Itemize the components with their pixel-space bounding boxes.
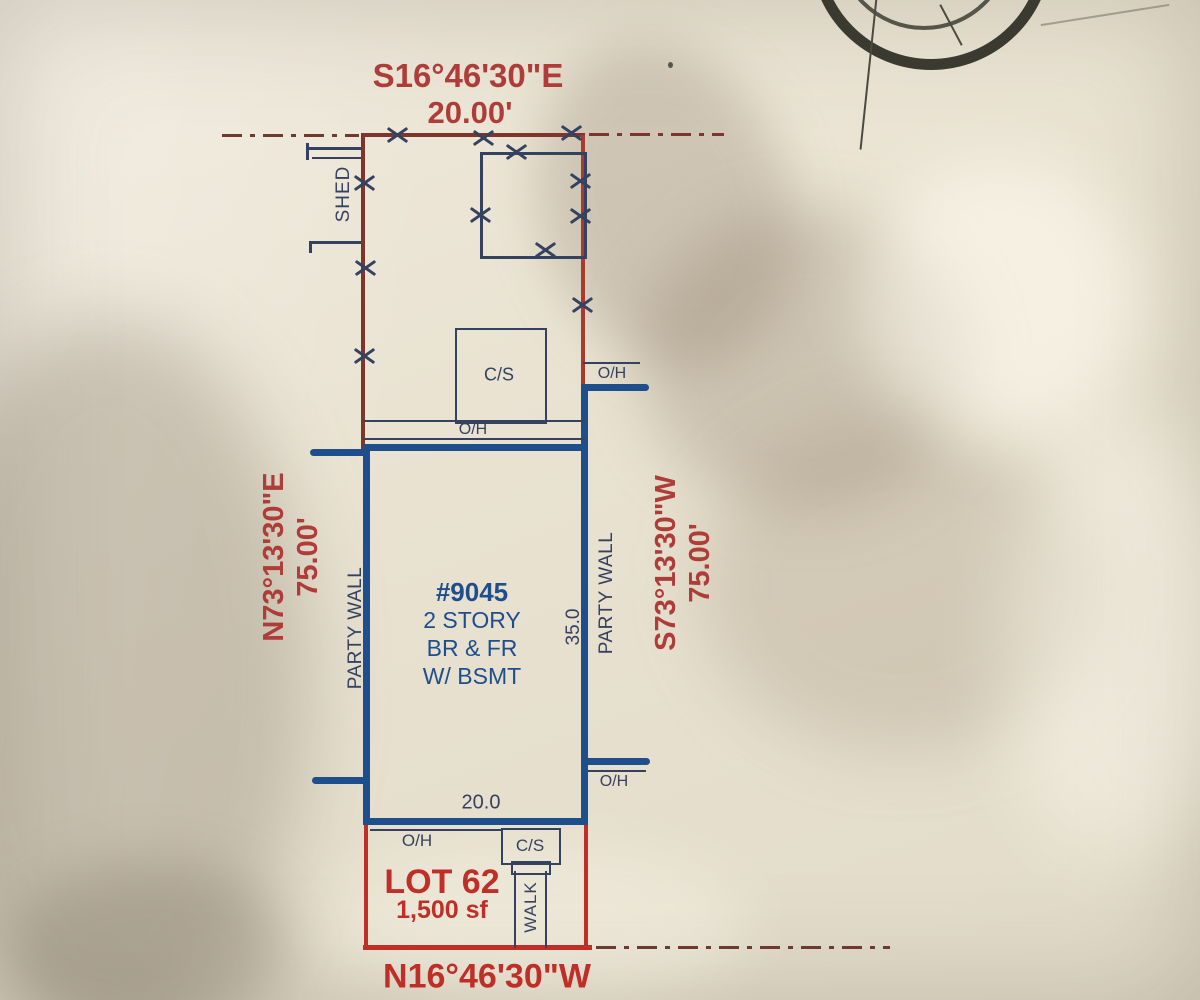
bearing-west: N73°13'30"E <box>257 472 291 641</box>
fence-x-mark <box>469 204 493 226</box>
paper-shadow <box>10 860 290 1000</box>
bearing-west-block: N73°13'30"E 75.00' <box>257 472 325 641</box>
boundary-extension-top-left <box>222 134 359 137</box>
overhang-label-upper-right: O/H <box>598 365 626 383</box>
overhang-line-bottom <box>370 829 502 831</box>
fence-x-mark <box>569 205 593 227</box>
boundary-extension-top-right <box>589 133 724 136</box>
paper-highlight <box>1000 420 1200 860</box>
overhang-label-lower-right: O/H <box>600 773 628 791</box>
lot-area: 1,500 sf <box>384 896 499 924</box>
building-depth-dimension: 35.0 <box>563 609 585 646</box>
fence-x-mark <box>354 257 378 279</box>
paper-highlight <box>860 160 1140 440</box>
lot-boundary-west-lower <box>364 822 368 950</box>
distance-west: 75.00' <box>291 472 325 641</box>
party-wall-elbow-vertical <box>581 384 588 450</box>
ink-speck <box>668 62 673 68</box>
building-description: #9045 2 STORY BR & FR W/ BSMT <box>423 578 521 690</box>
lot-boundary-east-lower <box>584 822 588 950</box>
overhang-leader-line <box>583 362 640 364</box>
house-number: #9045 <box>423 578 521 606</box>
scratch-line <box>1041 4 1170 26</box>
boundary-extension-bottom-right <box>596 946 890 949</box>
overhang-leader-line <box>588 770 646 772</box>
walk-label: WALK <box>521 881 541 933</box>
distance-east: 75.00' <box>683 475 717 651</box>
building-width-dimension: 20.0 <box>462 792 501 815</box>
shed-end-tick <box>309 241 312 253</box>
overhang-label-bottom: O/H <box>402 831 432 851</box>
building-desc-line: W/ BSMT <box>423 662 521 690</box>
paper-shadow <box>0 320 310 1000</box>
house-wall-tick-left-top <box>310 449 365 456</box>
fence-x-mark <box>353 172 377 194</box>
party-wall-elbow-horizontal <box>581 384 649 391</box>
fence-x-mark <box>571 294 595 316</box>
distance-north: 20.00' <box>428 95 513 131</box>
lot-boundary-south <box>363 945 592 950</box>
building-desc-line: BR & FR <box>423 634 521 662</box>
fence-x-mark <box>569 170 593 192</box>
survey-plat-photo: SHED C/S O/H O/H O/H #9045 2 STORY BR & … <box>0 0 1200 1000</box>
house-wall-tick-left-bottom <box>312 777 367 784</box>
paper-shadow <box>700 420 1100 750</box>
fence-x-mark <box>353 345 377 367</box>
bearing-east: S73°13'30"W <box>649 475 683 651</box>
overhang-label-top: O/H <box>459 421 487 439</box>
concrete-stoop-upper-label: C/S <box>484 365 514 386</box>
fence-x-mark <box>386 124 410 146</box>
bearing-south: N16°46'30"W <box>383 958 591 997</box>
fence-x-mark <box>560 122 584 144</box>
paper-shadow <box>640 210 970 510</box>
party-wall-label-left: PARTY WALL <box>345 567 367 690</box>
bearing-east-block: S73°13'30"W 75.00' <box>649 475 717 651</box>
shed-eave-line <box>312 157 361 159</box>
walk-edge-line <box>545 871 547 948</box>
shed-label: SHED <box>333 166 355 223</box>
house-wall-tick-right-bottom <box>584 758 650 765</box>
lot-label: LOT 62 1,500 sf <box>384 868 499 924</box>
building-desc-line: 2 STORY <box>423 606 521 634</box>
lot-name: LOT 62 <box>384 868 499 896</box>
shed-bottom-line <box>309 241 361 244</box>
house-overhang-line <box>363 438 585 440</box>
bearing-north: S16°46'30"E <box>373 57 564 95</box>
concrete-stoop-lower-label: C/S <box>516 836 544 856</box>
shed-roof-line <box>306 147 361 150</box>
fence-x-mark <box>505 141 529 163</box>
fence-x-mark <box>534 239 558 261</box>
party-wall-label-right: PARTY WALL <box>596 532 618 655</box>
walk-edge-line <box>514 871 516 948</box>
shed-end-tick <box>306 143 309 160</box>
